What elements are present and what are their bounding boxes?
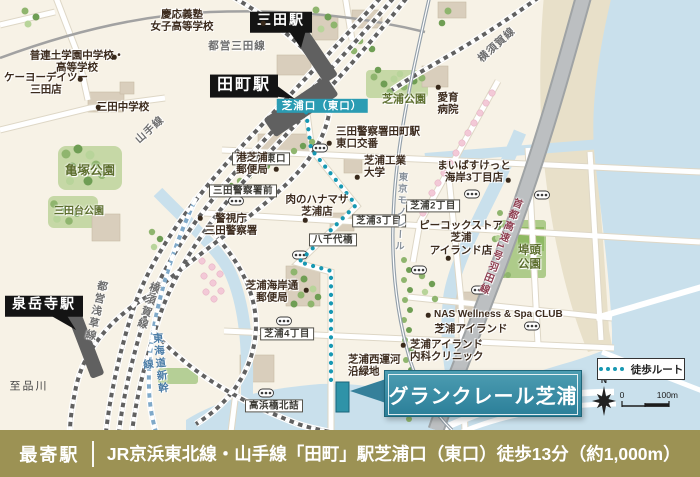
legend-route-dot <box>620 367 624 371</box>
poi-dot <box>261 21 266 26</box>
property-marker <box>336 382 349 412</box>
legend-route-label: 徒歩ルート <box>631 362 684 377</box>
poi-dot <box>446 256 451 261</box>
access-route-text: JR京浜東北線・山手線「田町」駅芝浦口（東口）徒歩13分（約1,000m） <box>107 441 681 466</box>
scale-100m: 100m <box>657 390 678 400</box>
footer-divider <box>92 441 94 467</box>
poi-dot <box>401 343 406 348</box>
poi-dot <box>426 313 431 318</box>
scale-zero: 0 <box>620 390 625 400</box>
poi-dot <box>96 105 101 110</box>
poi-dot <box>78 77 83 82</box>
poi-dot <box>112 55 117 60</box>
poi-dot <box>327 141 332 146</box>
poi-dot <box>506 178 511 183</box>
access-map: N 0 100m 三田駅 田町駅 泉岳寺駅 芝浦口（東口） 田町駅東口 三田警察… <box>0 0 700 477</box>
route-legend: 徒歩ルート <box>597 358 685 380</box>
poi-dot <box>355 175 360 180</box>
poi-dot <box>198 216 203 221</box>
access-bar: 最寄駅 JR京浜東北線・山手線「田町」駅芝浦口（東口）徒歩13分（約1,000m… <box>0 430 700 477</box>
legend-route-dot <box>613 367 617 371</box>
poi-dot <box>303 218 308 223</box>
property-banner-text: グランクレール芝浦 <box>388 374 578 415</box>
map-viewport: N 0 100m 三田駅 田町駅 泉岳寺駅 芝浦口（東口） 田町駅東口 三田警察… <box>0 0 700 430</box>
map-graphics: N 0 100m <box>0 0 700 430</box>
poi-dot <box>436 85 441 90</box>
poi-dot <box>274 167 279 172</box>
property-banner: グランクレール芝浦 <box>384 370 582 417</box>
legend-route-dot <box>599 367 603 371</box>
poi-dot <box>304 288 309 293</box>
legend-route-dot <box>606 367 610 371</box>
nearest-station-label: 最寄駅 <box>19 441 79 467</box>
